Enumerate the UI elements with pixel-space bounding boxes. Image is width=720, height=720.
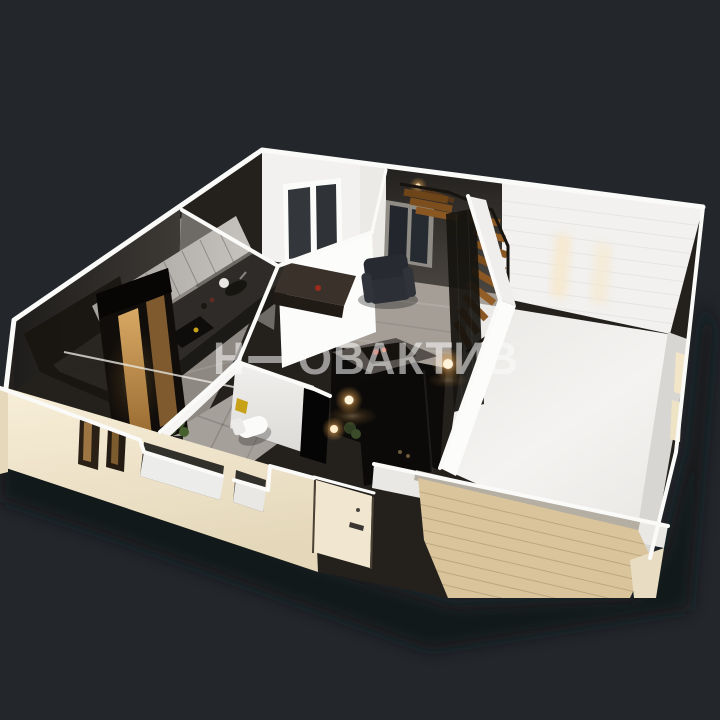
warm-interior-glimpse [83, 422, 92, 462]
pot-red [315, 285, 321, 291]
kettle [201, 303, 207, 309]
floorplan-render: Н ОВАКТИВ [0, 0, 720, 720]
wall-lamp [345, 396, 354, 405]
sink-bowl [219, 278, 229, 288]
shelf-decor [406, 454, 410, 458]
warm-interior-glimpse [111, 431, 119, 465]
window-pane [288, 187, 311, 259]
plant-leaves [351, 429, 361, 439]
wall-lamp [330, 425, 338, 433]
table-decor-red [373, 349, 379, 355]
wall-lamp [443, 359, 453, 369]
west-side-face [0, 388, 8, 474]
table-decor-red [382, 348, 387, 353]
window-pane [410, 209, 429, 264]
pot [210, 298, 215, 303]
cooktop-label [194, 328, 199, 333]
plant-leaves [179, 427, 189, 437]
door-peephole [356, 508, 360, 512]
window-pane [388, 205, 408, 262]
shelf-decor [398, 450, 402, 454]
apartment-3d-scene [0, 0, 720, 720]
